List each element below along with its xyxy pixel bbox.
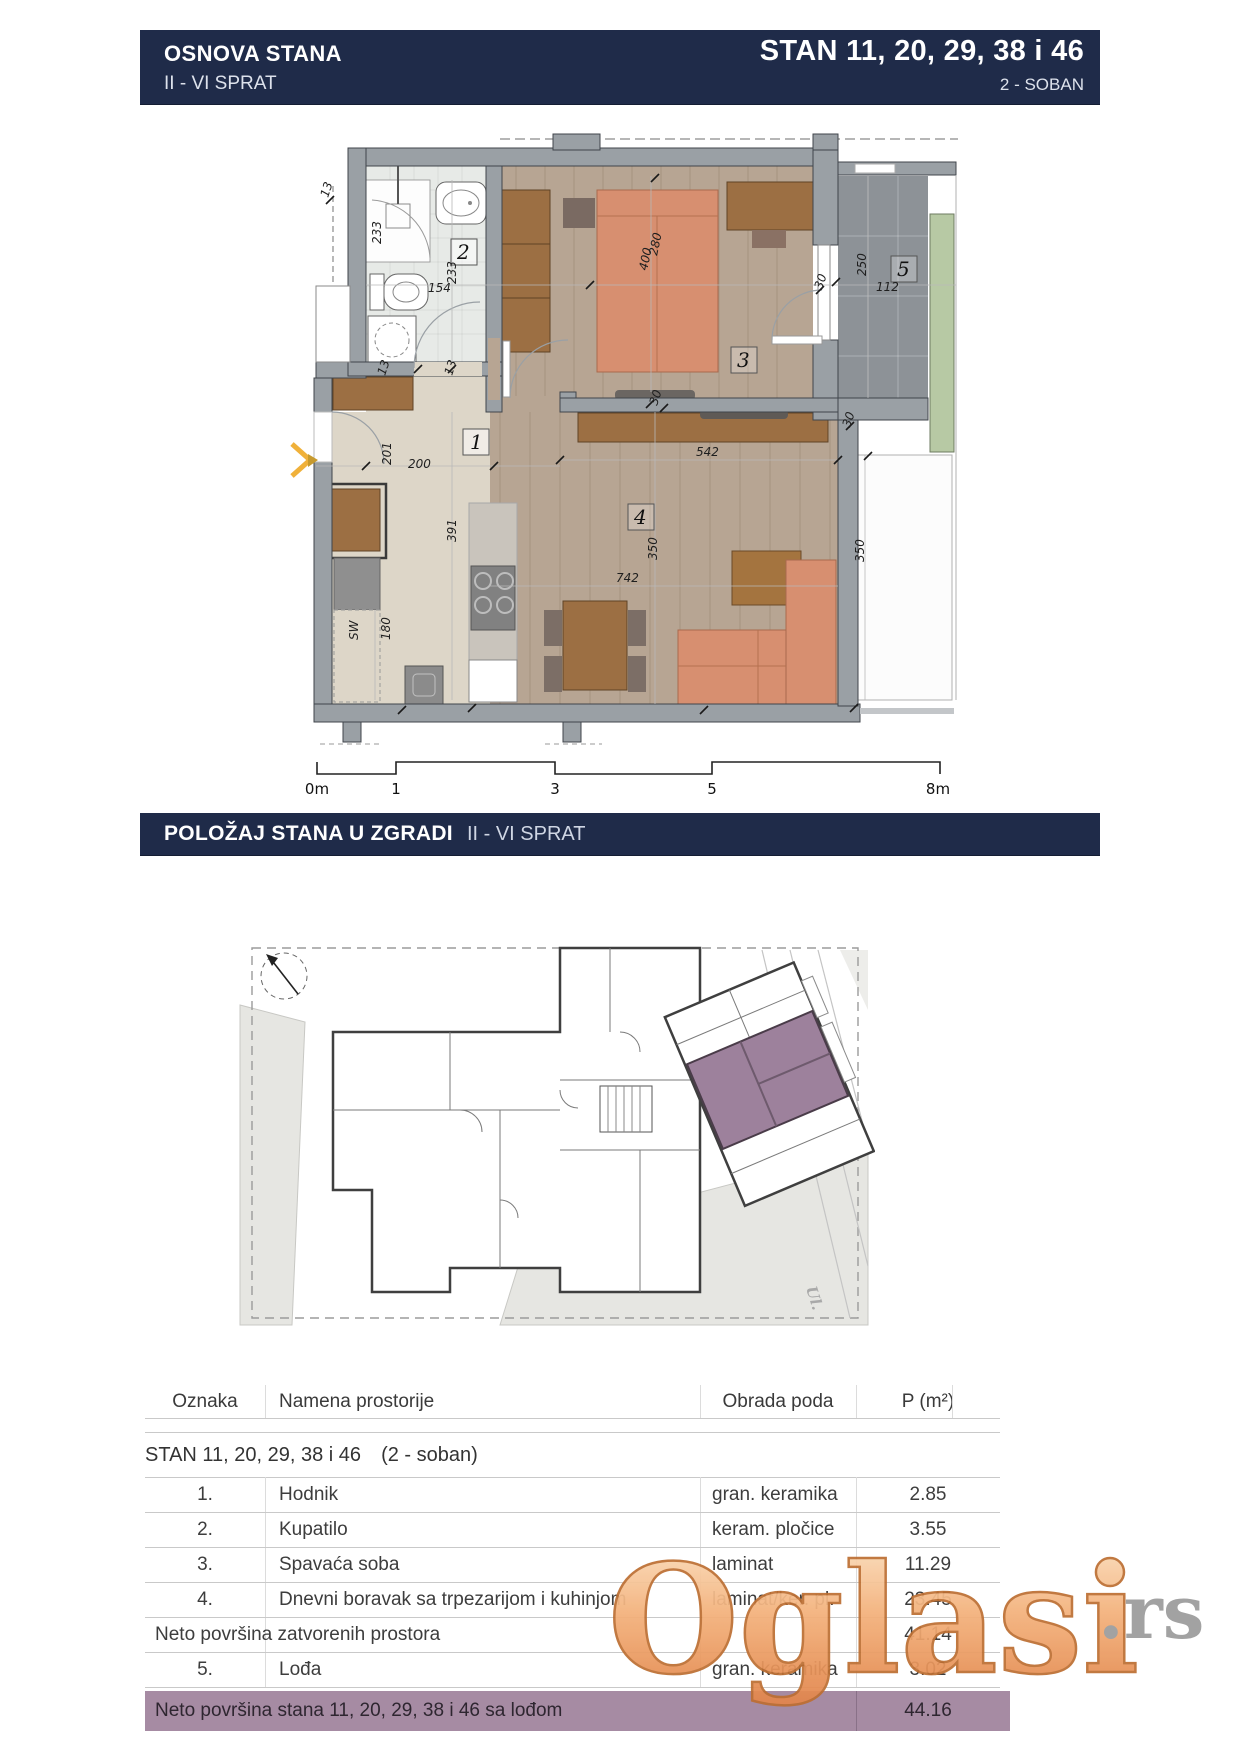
scale-bar-line xyxy=(317,762,940,774)
room-number-1: 1 xyxy=(463,429,489,455)
site-plan-drawing: Ul. xyxy=(235,875,875,1335)
passage-floor xyxy=(502,396,560,414)
chair xyxy=(544,656,562,692)
table-header-row: Oznaka Namena prostorije Obrada poda P (… xyxy=(145,1385,1000,1418)
room-number-4: 4 xyxy=(628,504,654,530)
row-area: 3.02 xyxy=(856,1659,1000,1681)
desk-chair xyxy=(752,230,786,248)
svg-text:2: 2 xyxy=(456,240,470,264)
room-number-5: 5 xyxy=(891,256,917,282)
dim-label: 350 xyxy=(646,537,660,560)
scale-label: 8m xyxy=(926,780,950,798)
dishwasher xyxy=(469,660,517,702)
table-subtotal-row: Neto površina zatvorenih prostora 41.14 xyxy=(145,1617,1000,1652)
subtotal-area: 41.14 xyxy=(856,1624,1000,1646)
col-header-p: P (m²) xyxy=(856,1391,1000,1413)
sofa-chaise xyxy=(786,560,836,704)
row-area: 3.55 xyxy=(856,1519,1000,1541)
section-title-bar: POLOŽAJ STANA U ZGRADI II - VI SPRAT xyxy=(140,813,1100,855)
dim-label: 180 xyxy=(379,617,393,640)
watermark-suffix: .rs xyxy=(1098,1570,1204,1656)
dim-label: 201 xyxy=(380,442,394,465)
page-subtitle: II - VI SPRAT xyxy=(164,73,277,95)
svg-text:3: 3 xyxy=(737,348,750,372)
stair-core xyxy=(600,1086,652,1132)
svg-text:4: 4 xyxy=(633,505,647,529)
dim-label: 200 xyxy=(408,457,431,471)
col-header-namena: Namena prostorije xyxy=(265,1391,700,1413)
row-oznaka: 5. xyxy=(145,1659,265,1681)
table-row: 4. Dnevni boravak sa trpezarijom i kuhin… xyxy=(145,1582,1000,1617)
scale-label: 0m xyxy=(305,780,329,798)
table-row: 5. Lođa gran. keramika 3.02 xyxy=(145,1652,1000,1687)
svg-text:5: 5 xyxy=(897,257,910,281)
group-type: (2 - soban) xyxy=(381,1444,478,1467)
row-obrada: gran. keramika xyxy=(700,1484,856,1506)
title-bar: OSNOVA STANA II - VI SPRAT STAN 11, 20, … xyxy=(140,30,1100,104)
row-area: 2.85 xyxy=(856,1484,1000,1506)
section-title: POLOŽAJ STANA U ZGRADI xyxy=(164,822,453,846)
section-subtitle: II - VI SPRAT xyxy=(467,823,586,846)
scale-label: 1 xyxy=(391,780,401,798)
scale-bar: 0m 1 3 5 8m xyxy=(278,748,968,803)
dim-label: 542 xyxy=(696,445,719,459)
row-obrada: keram. pločice xyxy=(700,1519,856,1541)
fridge xyxy=(332,489,380,551)
col-header-oznaka: Oznaka xyxy=(145,1391,265,1413)
dim-label: 350 xyxy=(853,539,867,562)
dim-label: 233 xyxy=(370,221,384,244)
dim-label: 233 xyxy=(445,261,459,284)
row-obrada: laminat/ker. pl. xyxy=(700,1589,856,1611)
room-number-3: 3 xyxy=(731,347,757,373)
toilet xyxy=(384,274,428,310)
chair xyxy=(544,610,562,646)
total-label: Neto površina stana 11, 20, 29, 38 i 46 … xyxy=(145,1700,700,1722)
row-namena: Dnevni boravak sa trpezarijom i kuhinjom xyxy=(265,1589,700,1611)
row-obrada: laminat xyxy=(700,1554,856,1576)
table-total-row: Neto površina stana 11, 20, 29, 38 i 46 … xyxy=(145,1691,1010,1731)
row-oznaka: 4. xyxy=(145,1589,265,1611)
row-namena: Hodnik xyxy=(265,1484,700,1506)
row-oznaka: 1. xyxy=(145,1484,265,1506)
apartment-type: 2 - SOBAN xyxy=(1000,75,1084,95)
nightstand xyxy=(563,198,595,228)
kitchen-sink-counter xyxy=(334,558,380,610)
desk xyxy=(727,182,813,230)
row-area: 23.45 xyxy=(856,1589,1000,1611)
row-namena: Lođa xyxy=(265,1659,700,1681)
wardrobe xyxy=(502,190,550,352)
shower-area xyxy=(366,166,430,262)
flyer-page: OSNOVA STANA II - VI SPRAT STAN 11, 20, … xyxy=(0,0,1240,1753)
table-row: 3. Spavaća soba laminat 11.29 xyxy=(145,1547,1000,1582)
row-area: 11.29 xyxy=(856,1554,1000,1576)
chair xyxy=(628,656,646,692)
dim-label: 112 xyxy=(876,280,899,294)
thin-bottom-edge xyxy=(860,708,954,714)
areas-table: Oznaka Namena prostorije Obrada poda P (… xyxy=(145,1385,1010,1745)
row-namena: Spavaća soba xyxy=(265,1554,700,1576)
page-title: OSNOVA STANA xyxy=(164,41,342,67)
dim-label: SW xyxy=(347,619,361,640)
row-oznaka: 3. xyxy=(145,1554,265,1576)
terrace-below xyxy=(858,455,952,700)
svg-text:1: 1 xyxy=(470,430,483,454)
table-row: 2. Kupatilo keram. pločice 3.55 xyxy=(145,1512,1000,1547)
wall-niche xyxy=(316,286,350,362)
subtotal-label: Neto površina zatvorenih prostora xyxy=(145,1624,700,1646)
total-area: 44.16 xyxy=(856,1700,1000,1722)
row-namena: Kupatilo xyxy=(265,1519,700,1541)
apartment-title: STAN 11, 20, 29, 38 i 46 xyxy=(760,35,1084,68)
dim-label: 742 xyxy=(616,571,639,585)
dim-label: 250 xyxy=(855,253,869,276)
col-header-obrada: Obrada poda xyxy=(700,1391,856,1413)
table-group-row: STAN 11, 20, 29, 38 i 46 (2 - soban) xyxy=(145,1435,1000,1475)
dim-label: 391 xyxy=(445,519,459,542)
planter xyxy=(930,214,954,452)
floor-plan-drawing: 1 2 3 4 5 233 154 233 13 xyxy=(278,128,968,753)
row-oznaka: 2. xyxy=(145,1519,265,1541)
shoe-cabinet xyxy=(333,377,413,410)
row-obrada: gran. keramika xyxy=(700,1659,856,1681)
scale-label: 3 xyxy=(550,780,560,798)
scale-label: 5 xyxy=(707,780,717,798)
chair xyxy=(628,610,646,646)
island-sink xyxy=(405,666,443,704)
table-row: 1. Hodnik gran. keramika 2.85 xyxy=(145,1477,1000,1512)
dining-table xyxy=(563,601,627,690)
group-title: STAN 11, 20, 29, 38 i 46 xyxy=(145,1444,361,1467)
toilet-tank xyxy=(370,274,384,310)
